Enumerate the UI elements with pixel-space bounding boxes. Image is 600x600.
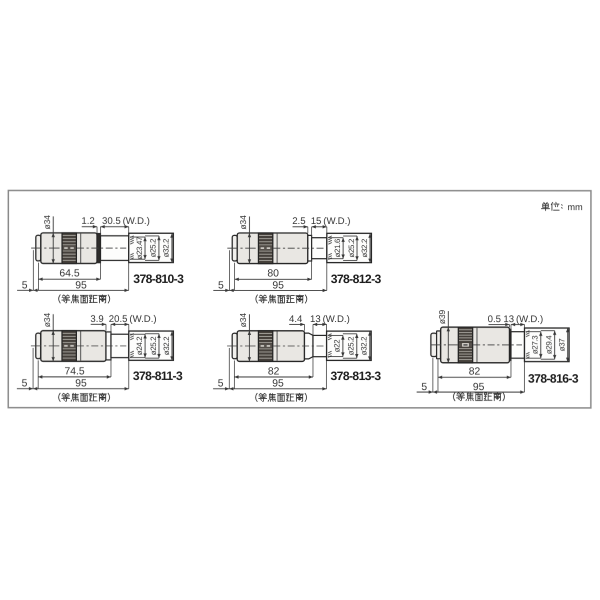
svg-text:ø27.3: ø27.3	[531, 336, 540, 354]
svg-text:74.5: 74.5	[64, 366, 84, 377]
svg-text:5: 5	[218, 379, 224, 390]
svg-text:378-810-3: 378-810-3	[133, 272, 184, 286]
svg-text:5: 5	[22, 280, 28, 291]
svg-text:ø25.2: ø25.2	[347, 239, 356, 257]
svg-text:5: 5	[421, 382, 427, 393]
svg-text:378-816-3: 378-816-3	[528, 372, 579, 386]
svg-text:ø24.2: ø24.2	[135, 337, 144, 355]
svg-text:ø23.47: ø23.47	[135, 237, 144, 259]
svg-text:82: 82	[469, 367, 481, 378]
svg-text:20.5 (W.D.): 20.5 (W.D.)	[109, 314, 157, 325]
svg-text:30.5 (W.D.): 30.5 (W.D.)	[102, 216, 150, 227]
svg-text:13 (W.D.): 13 (W.D.)	[503, 314, 543, 325]
svg-text:378-811-3: 378-811-3	[133, 369, 183, 383]
svg-text:95: 95	[75, 280, 87, 291]
svg-text:64.5: 64.5	[59, 268, 79, 279]
svg-text:ø39: ø39	[437, 310, 447, 325]
svg-text:0.5: 0.5	[488, 314, 501, 325]
svg-text:95: 95	[272, 280, 284, 291]
svg-text:ø34: ø34	[238, 215, 248, 230]
svg-text:80: 80	[267, 269, 279, 280]
svg-text:ø32.2: ø32.2	[162, 337, 171, 355]
svg-text:1.2: 1.2	[81, 216, 94, 227]
svg-text:82: 82	[268, 366, 280, 377]
svg-text:2.5: 2.5	[292, 216, 305, 227]
svg-text:378-813-3: 378-813-3	[330, 369, 381, 383]
svg-text:15 (W.D.): 15 (W.D.)	[311, 216, 351, 227]
svg-text:ø21.6: ø21.6	[333, 239, 342, 257]
svg-text:378-812-3: 378-812-3	[331, 272, 382, 286]
svg-text:ø37: ø37	[557, 339, 566, 352]
svg-text:5: 5	[218, 280, 224, 291]
svg-text:ø34: ø34	[42, 313, 52, 328]
svg-text:95: 95	[75, 379, 87, 390]
svg-text:ø34: ø34	[238, 313, 248, 328]
svg-text:ø22: ø22	[333, 340, 342, 353]
svg-text:ø32.2: ø32.2	[360, 239, 369, 257]
svg-text:ø25.2: ø25.2	[149, 239, 158, 257]
svg-text:95: 95	[272, 379, 284, 390]
svg-text:4.4: 4.4	[289, 314, 303, 325]
svg-text:13 (W.D.): 13 (W.D.)	[310, 314, 350, 325]
svg-text:5: 5	[22, 379, 28, 390]
svg-text:ø25.2: ø25.2	[347, 337, 356, 355]
svg-text:ø25.2: ø25.2	[149, 337, 158, 355]
svg-text:ø32.2: ø32.2	[360, 337, 369, 355]
svg-text:ø29.4: ø29.4	[544, 335, 553, 354]
svg-text:mm: mm	[567, 202, 583, 212]
svg-text:ø32.2: ø32.2	[162, 239, 171, 257]
svg-text:ø34: ø34	[42, 215, 52, 230]
svg-text:3.9: 3.9	[90, 314, 103, 325]
svg-text:95: 95	[473, 382, 485, 393]
